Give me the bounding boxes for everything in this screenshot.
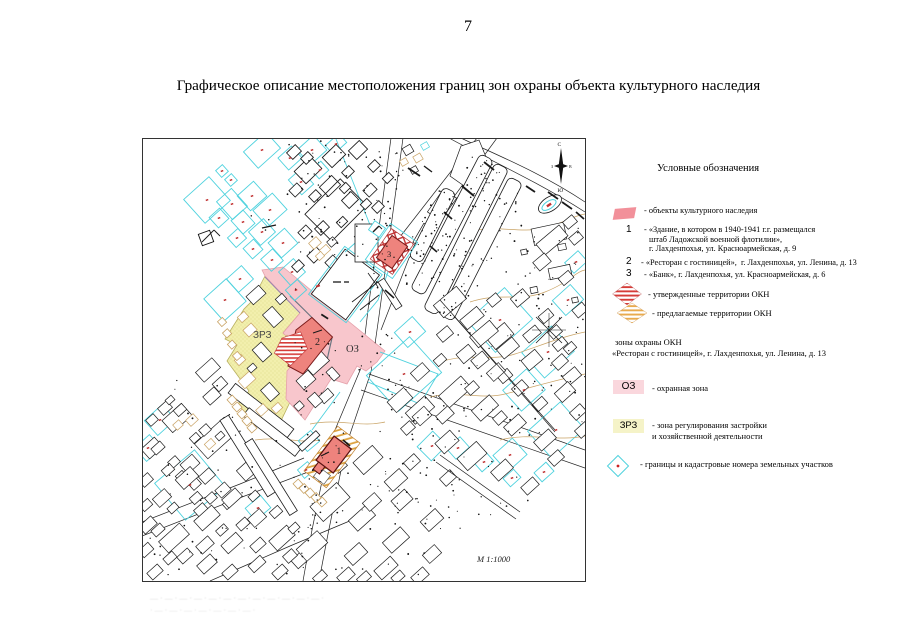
svg-text:М 1:1000: М 1:1000 — [476, 554, 511, 564]
svg-text:2: 2 — [315, 337, 320, 348]
svg-text:ОЗ: ОЗ — [346, 344, 359, 355]
svg-text:Ю: Ю — [558, 188, 564, 194]
svg-text:ЗРЗ: ЗРЗ — [253, 330, 272, 341]
svg-text:1: 1 — [337, 447, 342, 457]
svg-text:З: З — [551, 164, 553, 169]
svg-text:В: В — [569, 164, 572, 169]
svg-text:3: 3 — [387, 249, 391, 259]
svg-text:С: С — [558, 142, 562, 148]
